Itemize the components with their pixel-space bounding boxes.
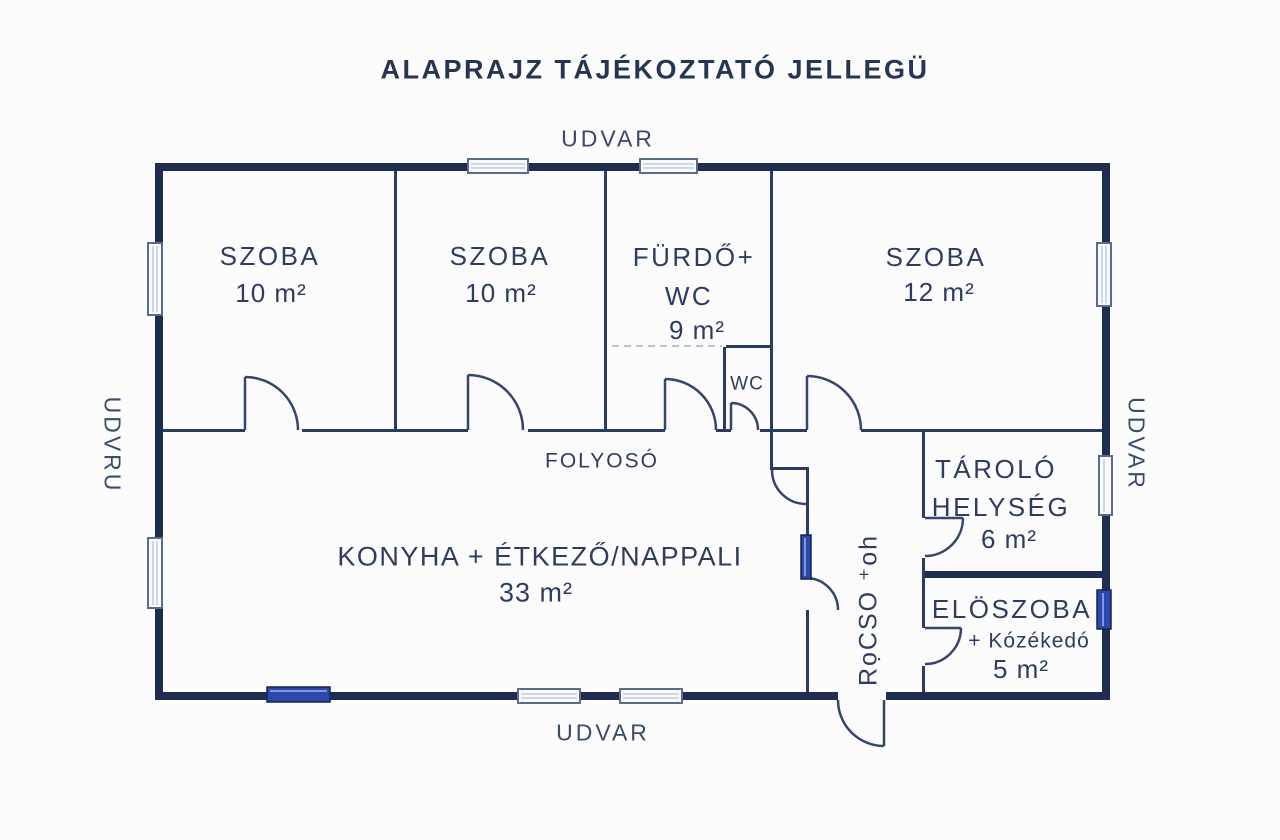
szoba3-area: 12 m² [903, 279, 974, 305]
corridor-wall-seg1 [163, 429, 245, 432]
furdo-area: 9 m² [669, 317, 725, 343]
udvar-label-right: UDVAR [1125, 397, 1148, 491]
window-right-1 [1097, 243, 1111, 306]
floor-plan: ALAPRAJZ TÁJÉKOZTATÓ JELLEGÜ UDVAR UDVAR… [0, 0, 1280, 840]
blue-door-passage-wall [801, 535, 811, 579]
wall-bottom-left [155, 692, 838, 700]
blue-window-right [1097, 590, 1111, 629]
corridor-wall-seg3 [528, 429, 665, 432]
window-left-2 [148, 538, 162, 608]
wall-top [155, 163, 1110, 171]
divider-szoba1-szoba2 [394, 171, 397, 429]
eloszoba-sub: + Kózékedó [968, 631, 1090, 652]
window-bottom-1 [518, 689, 580, 703]
door-eloszoba [925, 628, 961, 664]
tarolo-name-line2: HELYSÉG [932, 494, 1070, 520]
wc-wall-horizontal [726, 345, 770, 348]
door-szoba1 [245, 377, 298, 430]
wall-tarolo-eloszoba-divider [922, 571, 1110, 578]
door-entrance [838, 700, 884, 746]
door-passage-upper [772, 470, 806, 504]
szoba3-name: SZOBA [886, 244, 987, 270]
szoba2-name: SZOBA [450, 243, 551, 269]
tarolo-name-line1: TÁROLÓ [935, 456, 1057, 482]
passage-left-wall-lower [806, 610, 809, 692]
eloszoba-area: 5 m² [993, 656, 1049, 682]
eloszoba-name: ELÖSZOBA [932, 596, 1092, 622]
tarolo-area: 6 m² [981, 526, 1037, 552]
wc-wall-vertical [723, 347, 726, 429]
udvar-label-top: UDVAR [561, 128, 655, 151]
window-top-2 [640, 159, 697, 173]
plan-title: ALAPRAJZ TÁJÉKOZTATÓ JELLEGÜ [380, 57, 929, 84]
passage-stub-wall [772, 467, 806, 470]
folyoso-name: FOLYOSÓ [545, 451, 659, 472]
door-szoba2 [468, 375, 523, 430]
passage-right-wall-middle [922, 558, 925, 628]
door-szoba3 [807, 376, 861, 430]
window-top-1 [468, 159, 528, 173]
corridor-wall-seg6 [861, 429, 1102, 432]
szoba1-name: SZOBA [220, 243, 321, 269]
szoba2-area: 10 m² [465, 280, 536, 306]
furdo-name-line2: WC [665, 283, 713, 309]
passage-name: RọCSO ⁺oh [857, 534, 882, 686]
wc-name: WC [730, 375, 764, 394]
divider-furdo-szoba3 [770, 171, 773, 470]
window-right-2 [1099, 456, 1112, 515]
szoba1-area: 10 m² [235, 280, 306, 306]
door-tarolo [925, 518, 963, 556]
wall-bottom-right [886, 692, 1110, 700]
divider-szoba2-furdo [604, 171, 607, 429]
passage-right-wall-upper [922, 432, 925, 518]
window-left-1 [148, 243, 162, 315]
konyha-area: 33 m² [499, 580, 573, 607]
corridor-wall-seg4 [716, 429, 731, 432]
corridor-wall-seg2 [302, 429, 468, 432]
corridor-wall-seg5 [760, 429, 807, 432]
door-furdo [665, 379, 716, 430]
passage-right-wall-lower [922, 666, 925, 692]
blue-window-bottom [267, 687, 330, 702]
konyha-name: KONYHA + ÉTKEZŐ/NAPPALI [337, 544, 742, 571]
window-bottom-2 [620, 689, 682, 703]
furdo-name-line1: FÜRDŐ+ [633, 244, 756, 270]
udvar-label-bottom: UDVAR [556, 722, 650, 745]
door-passage-lower [806, 578, 838, 610]
udvar-label-left: UDVRU [101, 397, 124, 494]
door-wc [731, 403, 758, 430]
